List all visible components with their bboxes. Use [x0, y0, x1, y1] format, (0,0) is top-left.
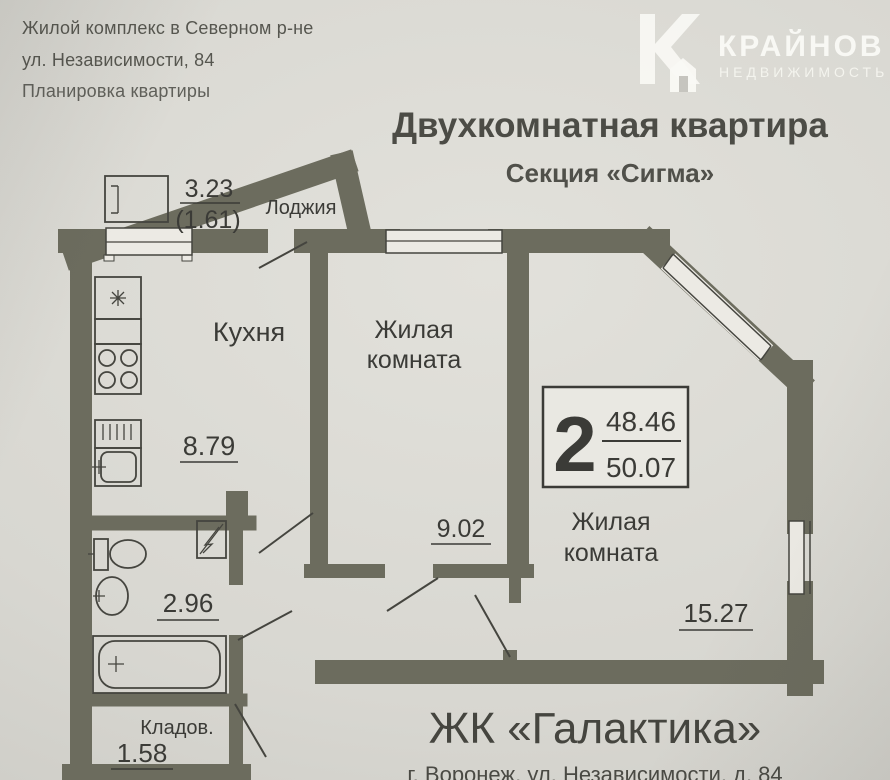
- loggia-cabinet-icon: [105, 176, 168, 222]
- bathroom-door-swing: [238, 611, 292, 640]
- badge-rooms-count: 2: [553, 400, 596, 488]
- room1-door-swing: [387, 578, 438, 611]
- room2-door-swing: [475, 595, 510, 657]
- toilet-icon: [88, 539, 146, 570]
- loggia-area-full: 3.23: [185, 175, 234, 203]
- room2-area: 15.27: [683, 598, 748, 628]
- floor-plan-drawing: 3.23 (1.61) Лоджия Кухня 8.79 Жилая комн…: [0, 0, 890, 780]
- room1-label-line1: Жилая: [374, 316, 453, 344]
- storage-label: Кладов.: [140, 717, 213, 739]
- complex-address: г. Воронеж, ул. Независимости, д. 84: [325, 762, 865, 780]
- wall: [344, 164, 360, 234]
- badge-living-area: 48.46: [606, 406, 676, 437]
- room1-area: 9.02: [437, 515, 486, 543]
- kitchen-drawers-icon: [95, 420, 141, 448]
- bathroom-area: 2.96: [163, 588, 214, 618]
- stove-icon: [95, 344, 141, 394]
- loggia-area-reduced: (1.61): [175, 206, 240, 234]
- storage-area: 1.58: [117, 738, 168, 768]
- complex-name: ЖК «Галактика»: [325, 704, 865, 754]
- kitchen-sink-icon: [92, 448, 141, 486]
- kitchen-label: Кухня: [213, 317, 285, 347]
- kitchen-door-swing: [259, 513, 313, 553]
- badge-total-area: 50.07: [606, 452, 676, 483]
- room2-label-line1: Жилая: [571, 508, 650, 536]
- room1-window: [386, 230, 502, 253]
- room1-label-line2: комната: [367, 346, 462, 374]
- kitchen-fridge-icon: [95, 277, 141, 319]
- room2-label-line2: комната: [564, 539, 659, 567]
- corner-diagonal-window: [663, 254, 771, 360]
- kitchen-area: 8.79: [183, 431, 236, 461]
- floor-plan-page: Жилой комплекс в Северном р-не ул. Незав…: [0, 0, 890, 780]
- kitchen-counter-icon: [95, 319, 141, 344]
- apartment-area-badge: 2 48.46 50.07: [543, 387, 688, 488]
- bathtub-icon: [93, 636, 226, 693]
- loggia-label: Лоджия: [266, 197, 337, 219]
- washbasin-icon: [93, 577, 128, 615]
